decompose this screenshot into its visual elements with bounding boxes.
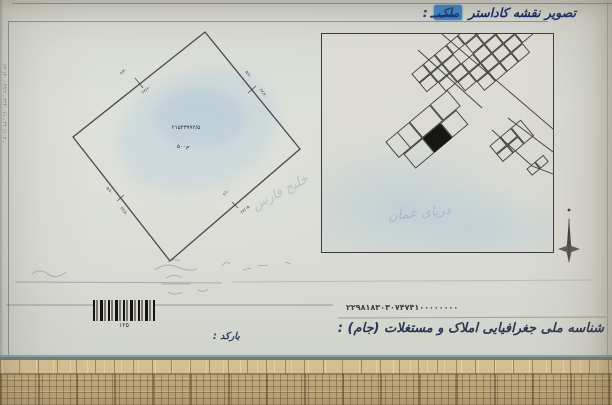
barcode-label: بارکد :	[213, 331, 240, 342]
parcel-plan-map: ۶/۴۰ ۲۴/۶۰ ۵/۸۰ ۲۳/۲۰ ۶/۱۰ ۲۴/۱۵ ۵/۷۰ ۲۲…	[48, 18, 324, 270]
scanned-deed-page: تصویر نقشه کاداستر ملک : ۶۳ ـ ۴۴۰/۱۰۳ ـ …	[0, 0, 612, 405]
location-map-drawing	[322, 34, 553, 252]
subject-parcel-black	[423, 124, 451, 152]
jam-id-label: شناسه ملی جغرافیایی املاک و مستغلات (جام…	[338, 321, 604, 336]
location-map-panel: دریای عمان	[321, 33, 554, 253]
frame-left-line	[8, 21, 9, 355]
persian-gulf-watermark: خلیج فارس	[250, 171, 312, 213]
parcel-code: ۲۱۵۴۳۹۹۲/۵	[172, 125, 200, 131]
dim-bottom-right-b: ۲۴/۱۵	[239, 204, 251, 215]
woven-mat-border-row	[0, 360, 612, 374]
barcode-digits: ۱۲۵	[93, 322, 155, 329]
page-title-highlight: ملک	[434, 5, 462, 20]
dim-top-left-a: ۶/۴۰	[119, 67, 129, 76]
page-title-text: تصویر نقشه کاداستر	[469, 5, 576, 20]
north-arrow-icon	[556, 205, 582, 265]
frame-right-line	[607, 2, 608, 355]
parcel-area: ۵۰۰م	[177, 144, 189, 150]
jam-id-number: ۲۲۹۸۱۸۳۰۳۰۷۴۷۴۱۰۰۰۰۰۰۰۰	[346, 303, 458, 312]
page-title: تصویر نقشه کاداستر ملک :	[423, 5, 576, 20]
page-title-colon: :	[423, 5, 428, 20]
dim-bottom-right-a: ۶/۱۰	[221, 188, 230, 197]
barcode	[93, 300, 155, 321]
left-margin-serial: ۶۳ ـ ۴۴۰/۱۰۳ ـ ۳۳۴۰۰۶۱ ـ ۴/۲۲ ـ ۱۳۰	[1, 64, 7, 239]
street-blocks	[386, 34, 553, 175]
top-rule-line	[12, 3, 612, 4]
woven-mat-background	[0, 374, 612, 405]
